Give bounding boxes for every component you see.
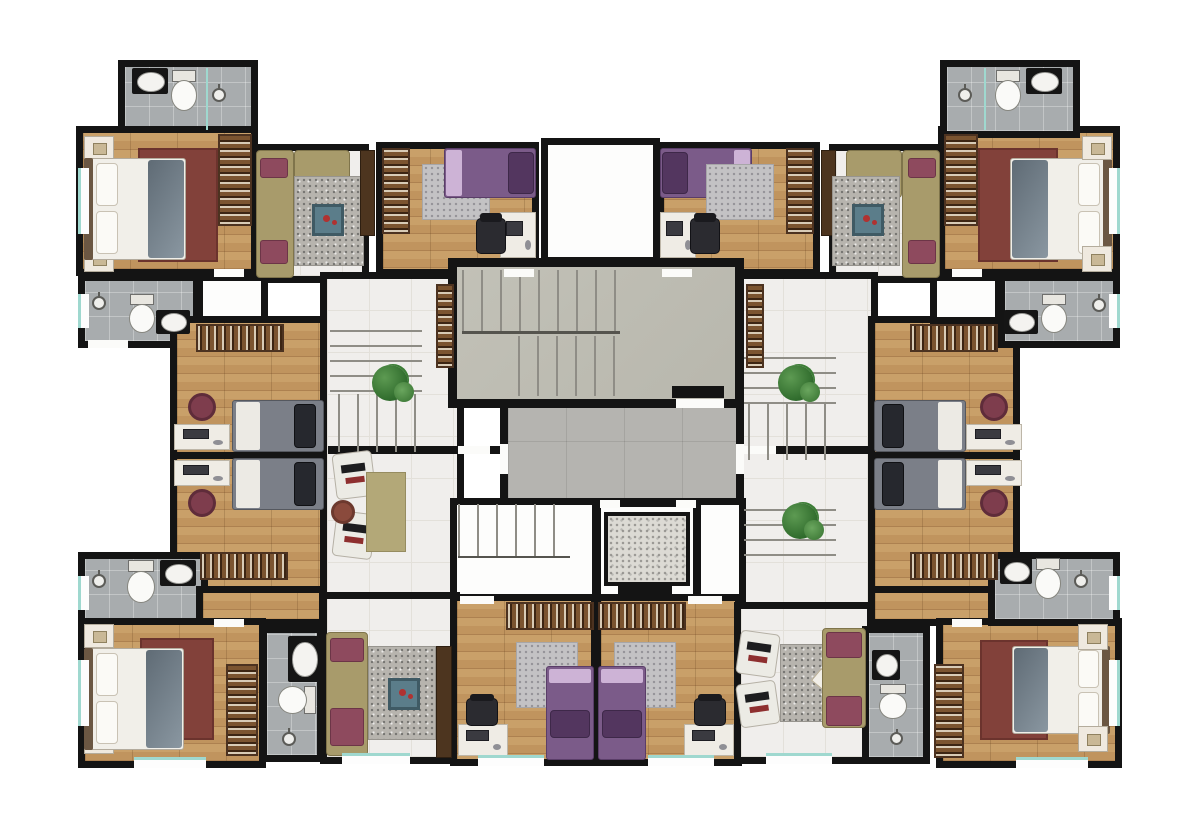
desk-chair <box>188 393 216 421</box>
toilet <box>278 684 316 714</box>
bed-sheet <box>938 402 962 450</box>
shower-screen <box>206 68 208 130</box>
shower-head <box>890 732 903 745</box>
pillow <box>1078 650 1099 688</box>
pillow <box>294 462 316 506</box>
tv-panel <box>360 150 375 236</box>
coffee-table <box>312 204 344 236</box>
hall-cabinet <box>436 284 454 368</box>
blanket <box>148 160 184 258</box>
window <box>1109 168 1120 234</box>
nightstand <box>1082 136 1112 160</box>
pillow <box>1078 163 1100 206</box>
door-opening <box>676 500 696 508</box>
door-opening <box>736 444 744 474</box>
pillow <box>602 710 642 738</box>
window <box>78 660 89 726</box>
door-opening <box>458 446 490 454</box>
door-opening <box>688 596 722 604</box>
armchair <box>735 679 781 728</box>
pillow <box>550 710 590 738</box>
pillow <box>1078 692 1099 730</box>
pillow <box>96 163 118 206</box>
door-opening <box>504 269 534 277</box>
window <box>78 576 89 610</box>
bed-sheet <box>549 669 591 683</box>
wardrobe-rack <box>196 324 284 352</box>
elevator-cab <box>604 512 690 586</box>
washbasin <box>156 310 190 334</box>
stair-rail <box>458 556 570 558</box>
closet-rack <box>226 664 258 756</box>
desk-chair <box>188 489 216 517</box>
shower-head <box>212 88 226 102</box>
shower-head <box>92 296 106 310</box>
blanket <box>146 650 182 748</box>
service-shaft <box>694 498 746 608</box>
nightstand <box>84 624 114 648</box>
pillow <box>294 404 316 448</box>
pillow <box>96 211 118 254</box>
office-chair <box>694 698 726 726</box>
toilet <box>878 684 906 718</box>
blanket <box>1014 648 1048 732</box>
stair-rail <box>462 331 620 334</box>
area-rug-olive <box>366 472 406 552</box>
light-well <box>541 138 660 264</box>
washbasin <box>1004 310 1038 334</box>
nightstand <box>84 136 114 160</box>
toilet <box>128 294 154 332</box>
armchair <box>735 629 781 678</box>
toilet <box>1040 294 1066 332</box>
desk <box>684 724 734 756</box>
toilet <box>1034 558 1060 598</box>
sofa-cushion <box>330 638 364 662</box>
sofa-cushion <box>826 632 862 658</box>
sofa-cushion <box>260 240 288 264</box>
door-opening <box>952 619 982 627</box>
window <box>478 755 544 766</box>
door-opening <box>460 596 494 604</box>
office-chair <box>690 218 720 254</box>
hall-cabinet <box>746 284 764 368</box>
pillow <box>882 404 904 448</box>
sofa-cushion <box>260 158 288 178</box>
office-chair <box>466 698 498 726</box>
shower-screen <box>984 68 986 130</box>
desk <box>966 460 1022 486</box>
winder-stairs <box>748 404 826 460</box>
wardrobe-rack <box>786 148 814 234</box>
washbasin <box>1026 68 1062 94</box>
pouf <box>331 500 355 524</box>
toilet <box>126 560 154 602</box>
window <box>648 755 714 766</box>
window <box>342 753 410 764</box>
sofa-cushion <box>908 240 936 264</box>
potted-plant <box>778 362 820 404</box>
toilet <box>994 70 1020 110</box>
wardrobe-rack <box>910 324 998 352</box>
desk <box>174 424 230 450</box>
window <box>1109 660 1120 726</box>
central-corridor <box>500 400 744 508</box>
window <box>1109 576 1120 610</box>
utility-middle-right <box>930 274 1002 324</box>
shower-head <box>1074 574 1088 588</box>
window <box>766 753 832 764</box>
pillow <box>662 152 688 194</box>
floor-mat <box>672 386 724 398</box>
window <box>78 168 89 234</box>
washbasin <box>872 650 900 680</box>
wardrobe-rack <box>200 552 288 580</box>
door-opening <box>500 444 508 474</box>
window <box>1016 757 1088 768</box>
door-opening <box>88 340 128 348</box>
nightstand <box>1078 726 1108 752</box>
window <box>78 294 89 328</box>
window <box>1109 294 1120 328</box>
blanket <box>1012 160 1048 258</box>
desk <box>966 424 1022 450</box>
bed-sheet <box>236 402 260 450</box>
washbasin <box>160 560 196 586</box>
wardrobe-rack <box>598 602 686 630</box>
floor-plan <box>0 0 1200 833</box>
door-opening <box>676 399 724 408</box>
desk-chair <box>980 489 1008 517</box>
desk <box>174 460 230 486</box>
nightstand <box>1078 624 1108 650</box>
pillow <box>96 701 118 744</box>
pillow <box>508 152 534 194</box>
door-opening <box>214 619 244 627</box>
bed-sheet <box>236 460 260 508</box>
wardrobe-rack <box>910 552 998 580</box>
window <box>134 757 206 768</box>
sofa-cushion <box>826 696 862 726</box>
area-rug-gray <box>706 164 774 220</box>
toilet <box>170 70 196 110</box>
sofa-cushion <box>330 708 364 746</box>
desk <box>458 724 508 756</box>
desk-chair <box>980 393 1008 421</box>
stair-flight-upper <box>462 270 620 332</box>
washbasin <box>132 68 168 94</box>
closet-rack <box>944 134 978 226</box>
nightstand <box>1082 246 1112 272</box>
sofa-cushion <box>908 158 936 178</box>
elevator-door-sill <box>618 586 672 596</box>
bed-sheet <box>446 150 462 196</box>
pillow <box>96 653 118 696</box>
shower-head <box>958 88 972 102</box>
bed-sheet <box>938 460 962 508</box>
stair-flight-lower <box>518 336 622 396</box>
bed-sheet <box>601 669 643 683</box>
closet-rack <box>218 134 252 226</box>
door-opening <box>952 269 982 277</box>
tv-panel <box>436 646 452 758</box>
potted-plant <box>372 362 414 404</box>
office-chair <box>476 218 506 254</box>
potted-plant <box>782 500 824 542</box>
door-opening <box>662 269 692 277</box>
shower-head <box>92 574 106 588</box>
closet-rack <box>934 664 964 758</box>
coffee-table <box>852 204 884 236</box>
wardrobe-rack <box>382 148 410 234</box>
coffee-table <box>388 678 420 710</box>
washbasin <box>288 636 320 682</box>
shower-head <box>282 732 296 746</box>
door-opening <box>214 269 244 277</box>
pillow <box>882 462 904 506</box>
door-opening <box>600 500 620 508</box>
secondary-stair-flight <box>458 504 570 558</box>
wardrobe-rack <box>506 602 594 630</box>
washbasin <box>1000 558 1032 584</box>
shower-head <box>1092 298 1106 312</box>
